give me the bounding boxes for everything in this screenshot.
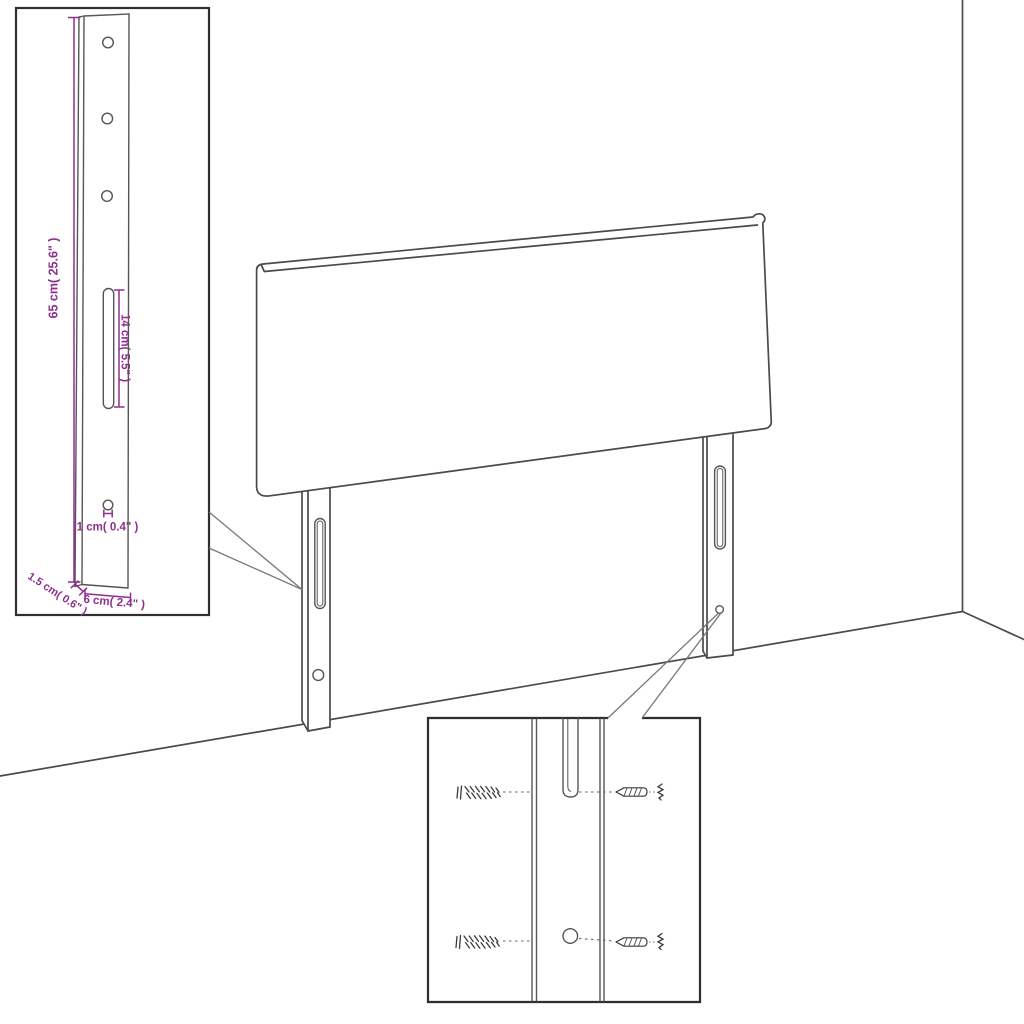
dimension-slot-label: 14 cm( 5.5" ) [119, 314, 131, 382]
diagram-stage: 65 cm( 25.6" ) 14 cm( 5.5" ) 1 cm( 0.4" … [0, 0, 1024, 1024]
bracket-outline [75, 14, 129, 588]
detail-box-frame [428, 718, 700, 1002]
dimension-hole-label: 1 cm( 0.4" ) [77, 522, 139, 534]
left-leg [302, 479, 330, 731]
floor-line-right [963, 612, 1024, 640]
screw-bottom [616, 938, 647, 946]
inset-leader-lines [209, 512, 302, 590]
dimension-height-label: 65 cm( 25.6" ) [47, 238, 61, 319]
screw-top [616, 788, 647, 796]
diagram-canvas: 65 cm( 25.6" ) 14 cm( 5.5" ) 1 cm( 0.4" … [0, 0, 1024, 1024]
headboard-panel [257, 214, 772, 496]
bracket-detail-inset: 65 cm( 25.6" ) 14 cm( 5.5" ) 1 cm( 0.4" … [16, 8, 209, 618]
screw-detail-inset [428, 718, 700, 1002]
